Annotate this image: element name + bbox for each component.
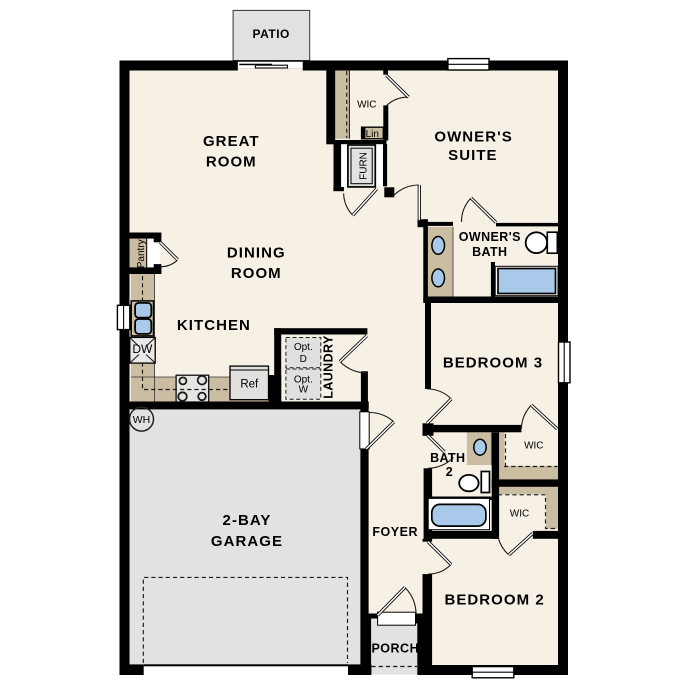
- svg-text:DINING: DINING: [227, 245, 286, 262]
- svg-text:Ref: Ref: [240, 378, 259, 390]
- svg-text:WIC: WIC: [510, 508, 529, 519]
- svg-text:Pantry: Pantry: [136, 239, 147, 268]
- svg-text:W: W: [299, 385, 309, 396]
- svg-text:GARAGE: GARAGE: [211, 533, 283, 550]
- svg-text:BEDROOM 2: BEDROOM 2: [444, 591, 544, 608]
- svg-text:OWNER'S: OWNER'S: [459, 230, 521, 244]
- svg-text:Lin: Lin: [366, 129, 379, 140]
- svg-text:WIC: WIC: [357, 100, 376, 111]
- svg-text:SUITE: SUITE: [448, 147, 497, 164]
- svg-text:GREAT: GREAT: [203, 133, 260, 150]
- svg-text:BATH: BATH: [430, 451, 465, 465]
- svg-text:Opt.: Opt.: [294, 342, 313, 353]
- svg-text:PATIO: PATIO: [253, 27, 290, 41]
- svg-text:2: 2: [446, 465, 453, 479]
- svg-text:2-BAY: 2-BAY: [223, 512, 272, 529]
- svg-text:OWNER'S: OWNER'S: [434, 128, 512, 145]
- svg-text:BEDROOM 3: BEDROOM 3: [443, 354, 543, 371]
- svg-text:LAUNDRY: LAUNDRY: [322, 335, 336, 399]
- svg-text:WIC: WIC: [524, 440, 543, 451]
- svg-text:D: D: [300, 354, 307, 365]
- svg-text:FOYER: FOYER: [372, 525, 418, 539]
- svg-text:BATH: BATH: [472, 245, 507, 259]
- svg-text:ROOM: ROOM: [231, 265, 282, 282]
- svg-text:KITCHEN: KITCHEN: [177, 317, 251, 334]
- svg-text:DW: DW: [132, 342, 153, 356]
- svg-text:PORCH: PORCH: [371, 642, 419, 656]
- svg-text:FURN: FURN: [359, 152, 370, 180]
- svg-text:WH: WH: [133, 414, 151, 426]
- svg-text:ROOM: ROOM: [206, 153, 257, 170]
